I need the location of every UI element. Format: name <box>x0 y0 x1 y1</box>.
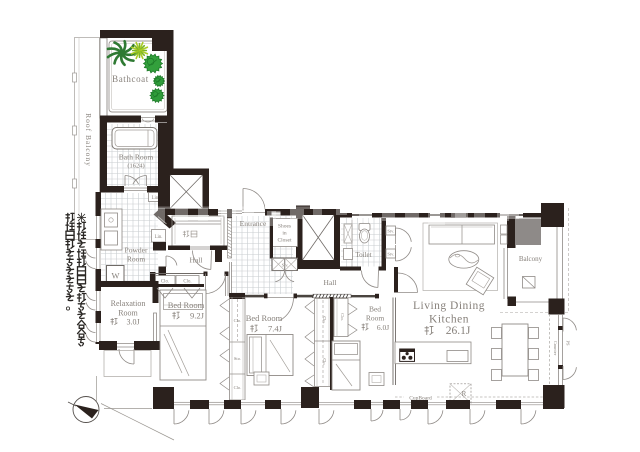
svg-text:Room: Room <box>127 255 146 264</box>
svg-text:Clo.: Clo. <box>234 318 242 323</box>
svg-text:Lin.: Lin. <box>155 235 163 240</box>
svg-text:in: in <box>282 231 287 237</box>
svg-text:Room: Room <box>118 309 138 318</box>
svg-text:Bed Room: Bed Room <box>168 300 205 310</box>
svg-text:Sto.: Sto. <box>234 356 241 361</box>
svg-text:Clo.: Clo. <box>183 279 191 284</box>
svg-text:Powder: Powder <box>125 246 148 255</box>
svg-text:Bath Room: Bath Room <box>119 153 154 162</box>
svg-text:Balcony: Balcony <box>519 255 543 263</box>
svg-text:7.4J: 7.4J <box>268 324 283 334</box>
svg-text:Bed: Bed <box>369 305 381 314</box>
svg-text:Hall: Hall <box>190 256 203 265</box>
svg-text:Kitchen: Kitchen <box>429 314 469 326</box>
svg-text:26.1J: 26.1J <box>446 325 471 337</box>
svg-text:Counter: Counter <box>553 341 558 356</box>
svg-text:Living Dining: Living Dining <box>413 300 485 312</box>
svg-text:Room: Room <box>366 314 385 323</box>
svg-text:PS: PS <box>566 340 571 346</box>
svg-text:Closet: Closet <box>277 238 292 244</box>
svg-text:Clo.: Clo. <box>322 358 327 365</box>
svg-text:Clo.: Clo. <box>161 279 169 284</box>
svg-text:Shoes: Shoes <box>278 224 291 230</box>
svg-text:Stv.: Stv. <box>282 263 289 268</box>
svg-text:Clo.: Clo. <box>322 316 327 323</box>
svg-text:Stv.: Stv. <box>387 228 394 233</box>
svg-text:Toilet: Toilet <box>355 251 371 259</box>
svg-text:3.0J: 3.0J <box>126 318 139 327</box>
svg-text:Clo.: Clo. <box>340 313 345 321</box>
svg-text:6.0J: 6.0J <box>377 323 389 332</box>
svg-text:Relaxation: Relaxation <box>111 299 146 308</box>
svg-text:Stv.: Stv. <box>387 251 394 256</box>
svg-text:Clo.: Clo. <box>234 385 242 390</box>
svg-text:Roof Balcony: Roof Balcony <box>84 113 93 167</box>
svg-text:Bathcoat: Bathcoat <box>112 74 149 84</box>
svg-text:9.2J: 9.2J <box>190 311 205 321</box>
svg-text:(1624): (1624) <box>127 163 144 170</box>
svg-text:W: W <box>111 271 119 281</box>
svg-text:Bed Room: Bed Room <box>246 313 283 323</box>
svg-text:Hall: Hall <box>324 278 337 287</box>
